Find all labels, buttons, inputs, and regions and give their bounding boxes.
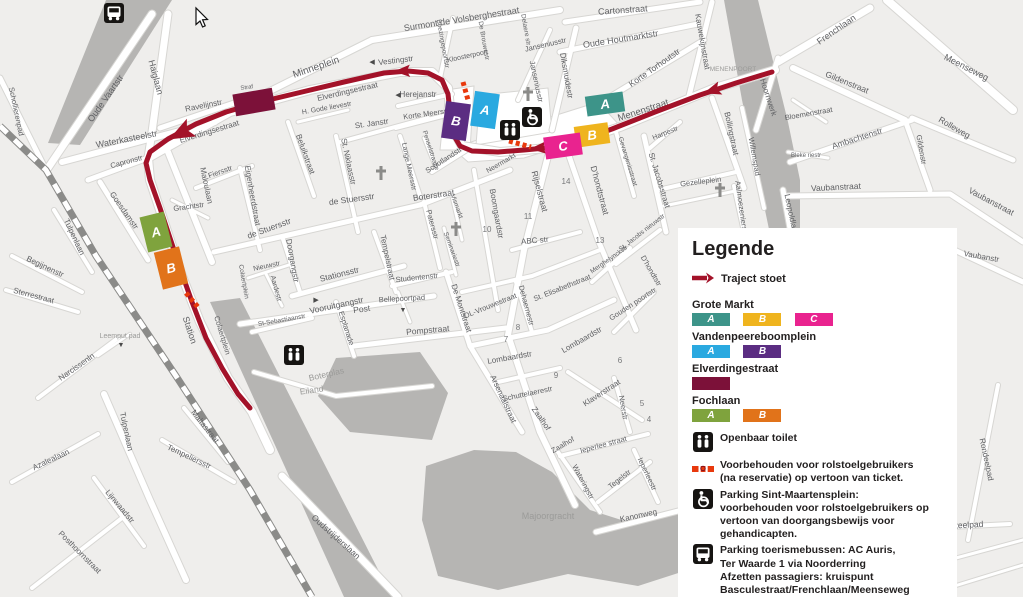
legend-item-reserved: Voorbehouden voor rolstoelgebruikers (na… (692, 459, 951, 485)
street-label: ▶ (313, 297, 319, 304)
legend-group-vandenpeereboomplein: Vandenpeereboomplein A B (692, 331, 951, 358)
legend-text: (na reservatie) op vertoon van ticket. (720, 472, 914, 485)
legend-group-name: Fochlaan (692, 395, 951, 407)
street-label: Bleke riestr (791, 153, 821, 159)
street-label: Leemput pad (100, 333, 141, 340)
legend-group-name: Grote Markt (692, 299, 951, 311)
block-number: 13 (596, 236, 605, 245)
bus-icon (104, 3, 124, 23)
zone-marker-B: B (441, 101, 471, 141)
legend-zone-chip: A (692, 409, 730, 422)
legend-text: Ter Waarde 1 via Noorderring (720, 558, 910, 571)
block-number: 9 (554, 371, 559, 380)
legend-group-elverdingestraat: Elverdingestraat (692, 363, 951, 390)
zone-marker-A: A (470, 91, 500, 129)
legend-text: Voorbehouden voor rolstoelgebruikers (720, 459, 914, 472)
block-number: 8 (516, 323, 521, 332)
legend-text: Parking toerismebussen: AC Auris, (720, 544, 910, 557)
toilet-icon (692, 432, 712, 456)
legend-text: Basculestraat/Frenchlaan/Meenseweg (720, 584, 910, 597)
legend-group-name: Vandenpeereboomplein (692, 331, 951, 343)
bus-icon (692, 544, 712, 597)
legend-group-grote-markt: Grote Markt A B C (692, 299, 951, 326)
svg-text:A: A (598, 96, 610, 112)
legend-text: Afzetten passagiers: kruispunt (720, 571, 910, 584)
legend-group-fochlaan: Fochlaan A B (692, 395, 951, 422)
block-number: 11 (524, 212, 533, 221)
legend-zone-chip: A (692, 345, 730, 358)
legend-zone-chip (692, 377, 730, 390)
legend-item-toilet: Openbaar toilet (692, 432, 951, 456)
legend-item-parking-wheelchair: Parking Sint-Maartensplein: voorbehouden… (692, 489, 951, 542)
street-label: Herejanstr (400, 90, 437, 99)
street-label: MENENPOORT (710, 66, 756, 73)
legend-text: Openbaar toilet (720, 432, 797, 445)
svg-text:A: A (478, 102, 490, 118)
legend-zone-chip: B (743, 409, 781, 422)
street-label: Majoorgracht (522, 511, 575, 521)
street-label: ◀ (369, 59, 375, 66)
route-label: Traject stoet (721, 273, 786, 285)
legend-zone-chip: B (743, 313, 781, 326)
legend-route-item: Traject stoet (692, 271, 951, 287)
legend-text: gehandicapten. (720, 528, 929, 541)
block-number: 4 (647, 415, 652, 424)
street-label: ◀ (395, 92, 401, 99)
block-number: 5 (640, 399, 645, 408)
legend-title: Legende (692, 238, 951, 261)
street-label: ▼ (400, 307, 407, 314)
legend-text: vertoon van doorgangsbewijs voor (720, 515, 929, 528)
toilet-icon (500, 120, 520, 140)
legend-text: voorbehouden voor rolstoelgebruikers op (720, 502, 929, 515)
wheelchair-icon (692, 489, 712, 542)
street-label: ▼ (118, 342, 125, 349)
block-number: 14 (562, 177, 571, 186)
block-number: 7 (504, 335, 509, 344)
legend-group-name: Elverdingestraat (692, 363, 951, 375)
wheelchair-icon (522, 107, 542, 127)
wheelchair-reserved-icon (692, 459, 712, 485)
block-number: 10 (483, 225, 492, 234)
block-number: 6 (618, 356, 623, 365)
legend-zone-chip: C (795, 313, 833, 326)
toilet-icon (284, 345, 304, 365)
legend-zone-chip: A (692, 313, 730, 326)
legend-zone-chip: B (743, 345, 781, 358)
legend-item-parking-bus: Parking toerismebussen: AC Auris, Ter Wa… (692, 544, 951, 597)
legend-text: Parking Sint-Maartensplein: (720, 489, 929, 502)
legend-panel: Legende Traject stoet Grote Markt A B C … (678, 228, 957, 597)
route-arrow-icon (692, 268, 712, 291)
